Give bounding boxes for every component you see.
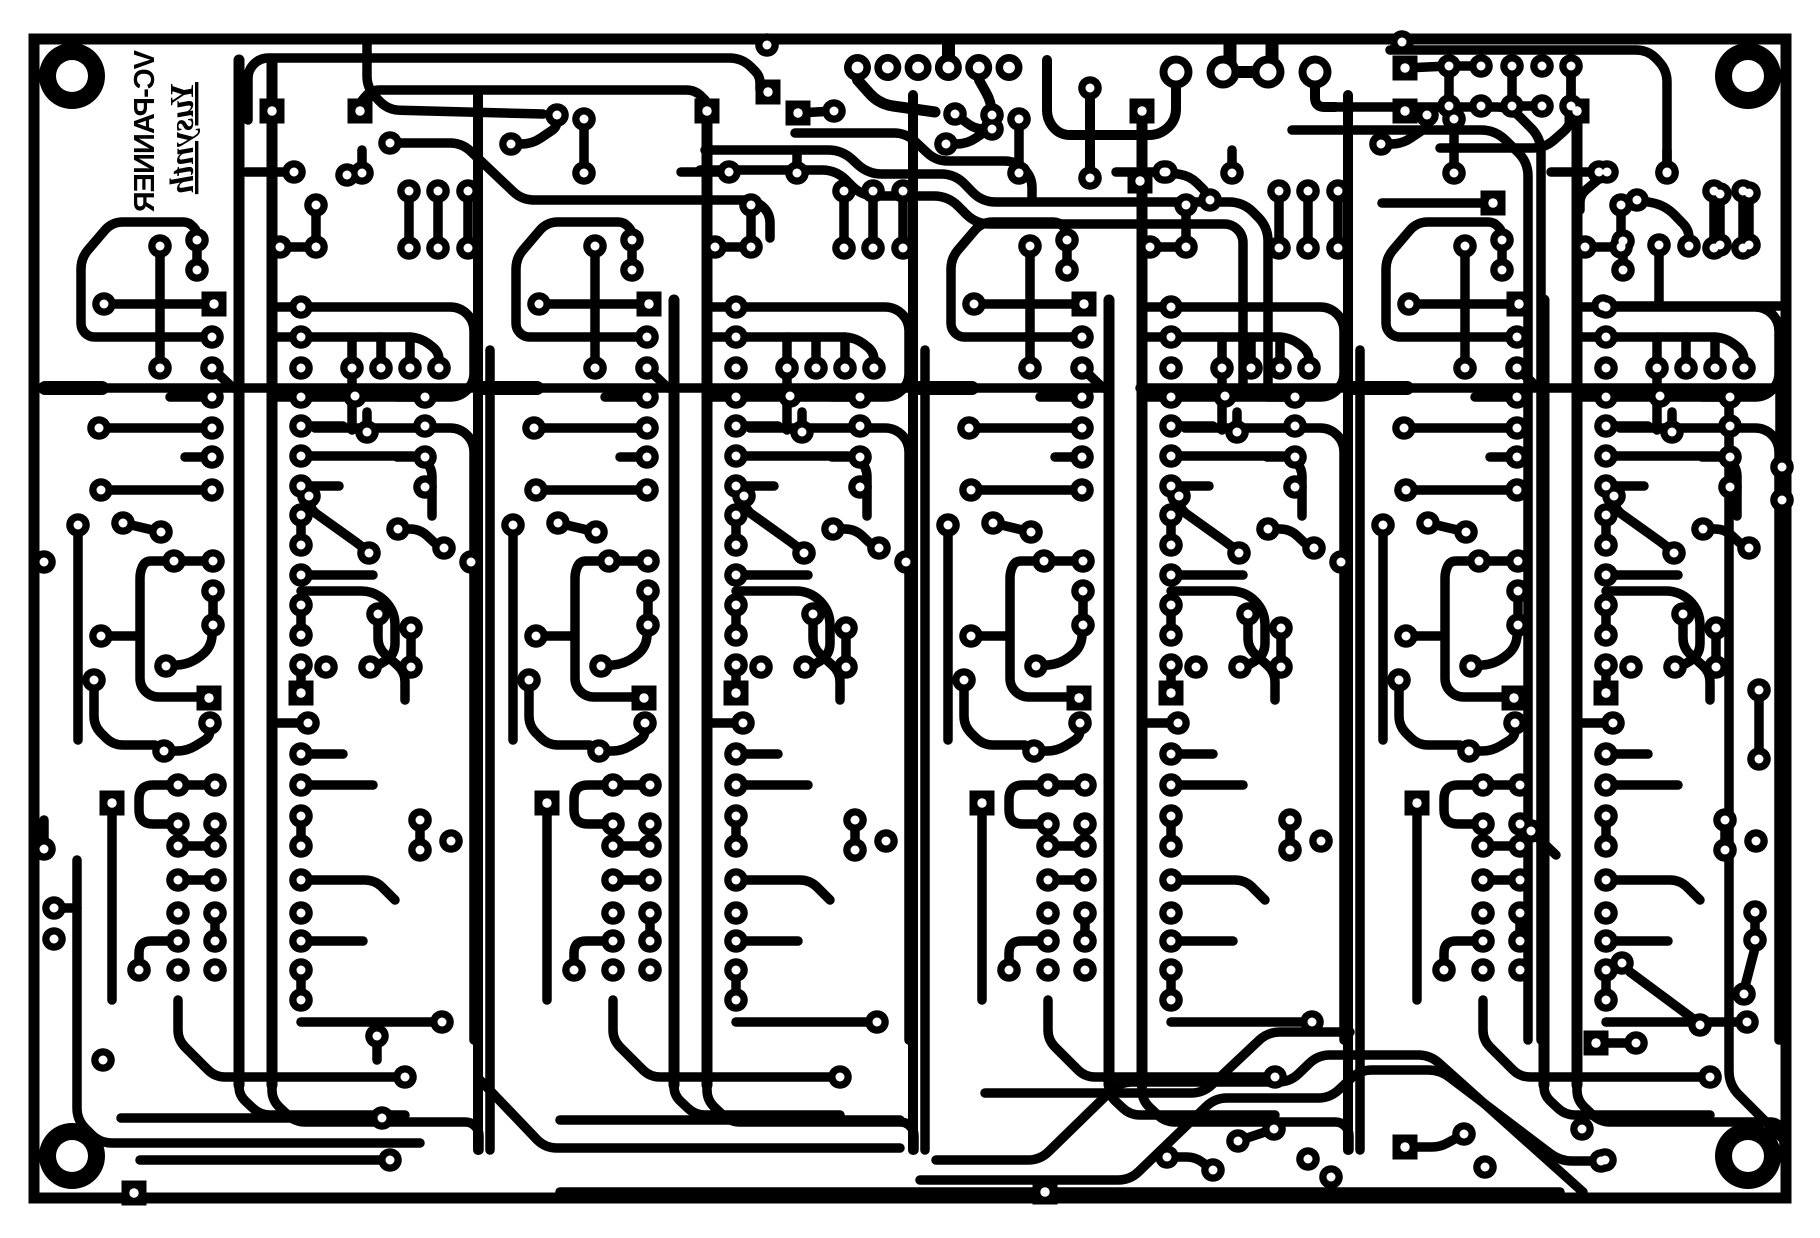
svg-text:Yusynth: Yusynth — [164, 82, 201, 194]
svg-text:VC-PANNER: VC-PANNER — [129, 50, 161, 212]
